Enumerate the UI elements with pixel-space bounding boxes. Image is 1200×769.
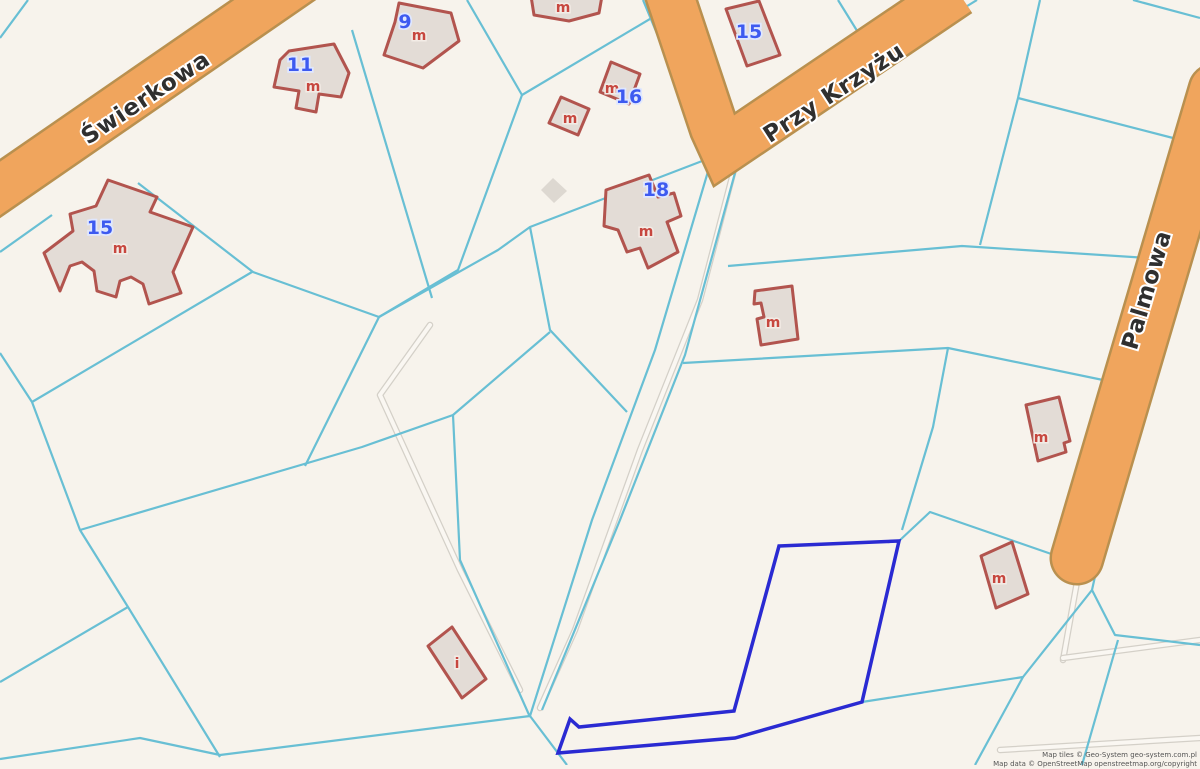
building-letter-label: m [563,111,578,127]
attribution-tiles-link[interactable]: Map tiles © Geo-System geo-system.com.pl [993,751,1197,760]
building-letter-label: m [639,224,654,240]
building-letter-label: m [306,79,321,95]
building-letter-label: m [113,241,128,257]
house-number-label: 16 [616,86,642,108]
building-letter-label: m [766,315,781,331]
map-svg[interactable]: mmmmmmmmmmi15119161518ŚwierkowaPrzy Krzy… [0,0,1200,765]
house-number-label: 18 [643,179,669,201]
building-letter-label: i [455,656,460,672]
house-number-label: 15 [736,21,762,43]
building-letter-label: m [556,0,571,16]
building-letter-label: m [992,571,1007,587]
building-letter-label: m [1034,430,1049,446]
house-number-label: 11 [287,54,313,76]
house-number-label: 9 [398,11,411,33]
building-letter-label: m [412,28,427,44]
map-canvas[interactable]: mmmmmmmmmmi15119161518ŚwierkowaPrzy Krzy… [0,0,1200,765]
house-number-label: 15 [87,217,113,239]
map-attribution: Map tiles © Geo-System geo-system.com.pl… [993,751,1197,769]
